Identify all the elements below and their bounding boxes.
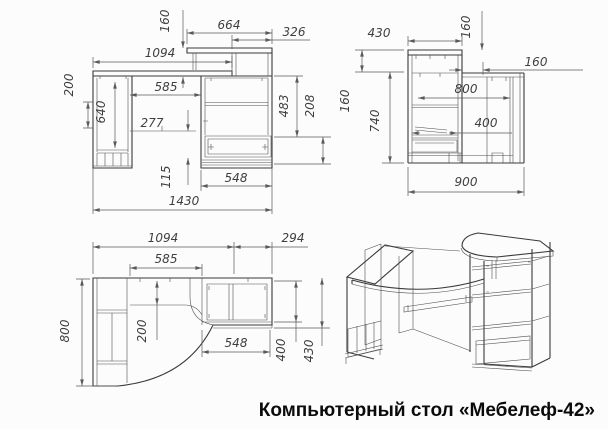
drawing-canvas: 664 326 1094 160 200 640 585 277 115 483… xyxy=(0,0,608,429)
side-view: 430 160 160 160 740 800 400 900 xyxy=(338,11,583,196)
dim-front-640: 640 xyxy=(94,100,108,123)
drawing-title: Компьютерный стол «Мебелеф-42» xyxy=(259,400,595,422)
dim-front-115: 115 xyxy=(159,166,173,189)
dim-front-326: 326 xyxy=(283,25,306,39)
dim-side-400: 400 xyxy=(475,116,498,130)
dim-side-740: 740 xyxy=(368,109,382,132)
isometric-structure xyxy=(345,233,553,371)
dim-front-664: 664 xyxy=(218,18,241,32)
dim-top-1094: 1094 xyxy=(148,231,179,245)
dim-side-900: 900 xyxy=(455,175,478,189)
dim-top-400: 400 xyxy=(274,338,288,361)
front-view-dimensions: 664 326 1094 160 200 640 585 277 115 483… xyxy=(62,9,331,214)
dim-top-800: 800 xyxy=(58,319,72,342)
dim-front-277: 277 xyxy=(141,116,164,130)
dim-front-483: 483 xyxy=(277,95,291,118)
dim-side-160-left: 160 xyxy=(338,89,352,112)
isometric-view xyxy=(345,233,553,371)
dim-top-430: 430 xyxy=(302,339,316,362)
front-view: 664 326 1094 160 200 640 585 277 115 483… xyxy=(62,9,331,214)
technical-drawing-sheet: 664 326 1094 160 200 640 585 277 115 483… xyxy=(0,0,608,429)
dim-top-548: 548 xyxy=(225,336,248,350)
front-view-structure xyxy=(93,48,272,168)
side-view-structure xyxy=(408,50,524,163)
dim-front-1430: 1430 xyxy=(169,194,200,208)
top-view: 1094 294 585 800 200 548 400 430 xyxy=(58,231,330,386)
dim-side-800: 800 xyxy=(455,82,478,96)
dim-top-200: 200 xyxy=(135,319,149,342)
dim-side-160-top: 160 xyxy=(459,15,473,38)
dim-front-200: 200 xyxy=(62,73,76,96)
dim-side-430: 430 xyxy=(368,26,391,40)
dim-side-160-right: 160 xyxy=(525,55,548,69)
dim-front-160: 160 xyxy=(158,9,172,32)
dim-front-1094: 1094 xyxy=(145,46,176,60)
top-view-dimensions: 1094 294 585 800 200 548 400 430 xyxy=(58,231,330,386)
side-view-dimensions: 430 160 160 160 740 800 400 900 xyxy=(338,11,583,196)
dim-top-294: 294 xyxy=(282,231,305,245)
dim-front-548: 548 xyxy=(225,171,248,185)
dim-front-208: 208 xyxy=(303,94,317,117)
dim-front-585: 585 xyxy=(155,80,178,94)
top-view-structure xyxy=(93,278,272,386)
dim-top-585: 585 xyxy=(155,252,178,266)
